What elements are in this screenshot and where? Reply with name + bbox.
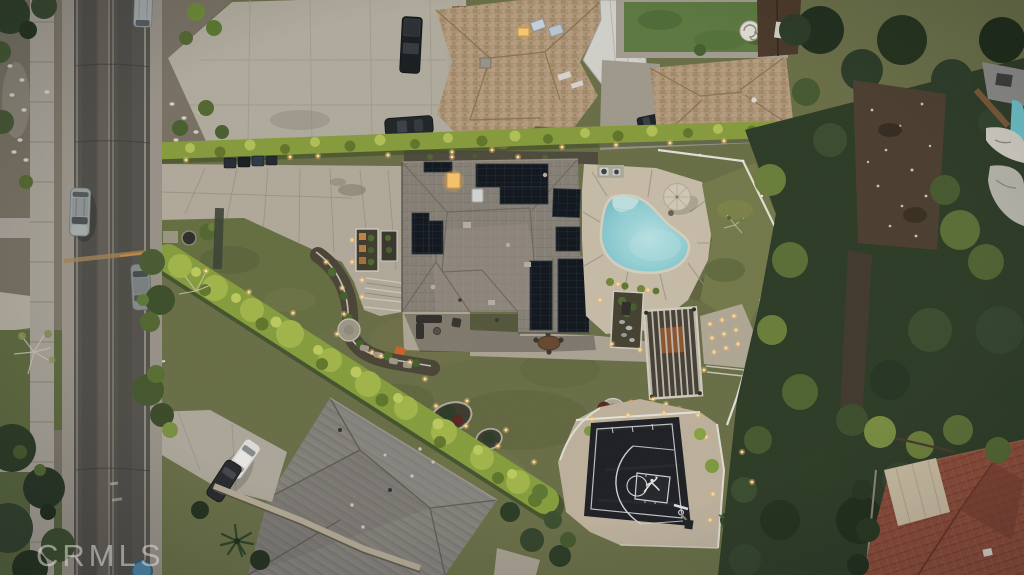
aerial-photo: CRMLS [0,0,1024,575]
crmls-watermark: CRMLS [36,538,165,574]
film-grain [0,0,1024,575]
aerial-photo-canvas [0,0,1024,575]
